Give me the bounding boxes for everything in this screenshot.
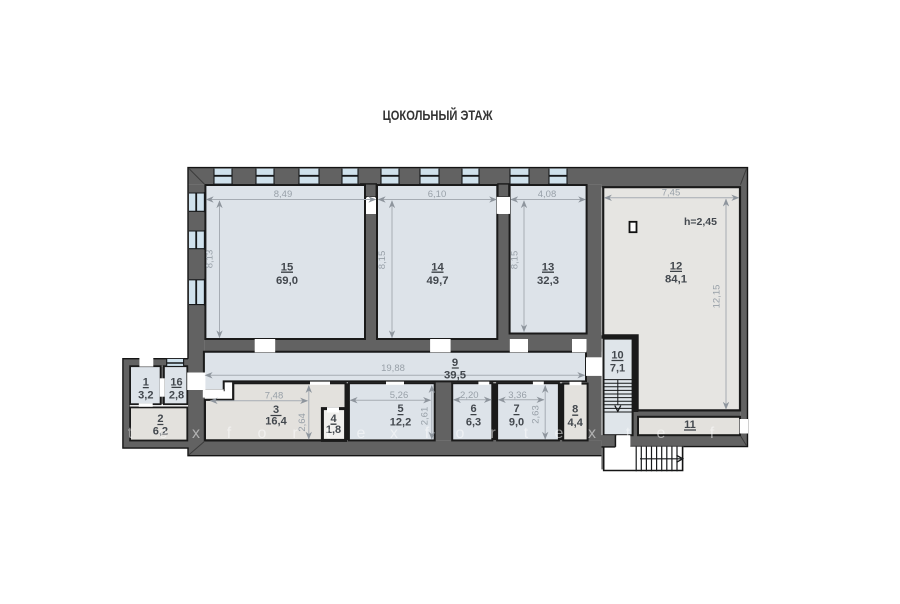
svg-text:r: r xyxy=(292,425,298,442)
svg-text:16: 16 xyxy=(170,377,182,389)
svg-text:5,26: 5,26 xyxy=(390,390,409,401)
svg-text:3: 3 xyxy=(273,404,279,416)
svg-text:e: e xyxy=(159,425,168,442)
svg-text:7: 7 xyxy=(513,403,519,415)
svg-text:x: x xyxy=(588,425,596,442)
svg-text:16,4: 16,4 xyxy=(265,416,287,428)
svg-text:t: t xyxy=(626,425,631,442)
svg-text:11: 11 xyxy=(684,419,696,431)
svg-text:2,63: 2,63 xyxy=(531,405,542,424)
svg-text:4,08: 4,08 xyxy=(538,189,557,200)
svg-text:49,7: 49,7 xyxy=(427,275,449,287)
svg-text:13: 13 xyxy=(542,261,555,273)
svg-text:6,10: 6,10 xyxy=(428,189,447,200)
svg-text:r: r xyxy=(490,425,496,442)
svg-text:10: 10 xyxy=(611,350,623,362)
svg-text:6,3: 6,3 xyxy=(466,416,481,428)
svg-text:15: 15 xyxy=(281,261,294,273)
svg-text:69,0: 69,0 xyxy=(276,275,298,287)
svg-text:h=2,45: h=2,45 xyxy=(684,216,717,228)
svg-text:4,4: 4,4 xyxy=(568,417,584,429)
svg-text:32,3: 32,3 xyxy=(537,275,559,287)
svg-text:t: t xyxy=(128,425,133,442)
svg-text:2,8: 2,8 xyxy=(169,389,184,401)
svg-text:3,2: 3,2 xyxy=(138,389,153,401)
svg-text:e: e xyxy=(657,425,666,442)
svg-text:7,1: 7,1 xyxy=(610,363,625,375)
svg-text:6: 6 xyxy=(470,403,476,415)
svg-text:84,1: 84,1 xyxy=(665,274,687,286)
svg-text:x: x xyxy=(192,425,200,442)
svg-text:t: t xyxy=(326,425,331,442)
svg-text:5: 5 xyxy=(397,403,403,415)
svg-text:39,5: 39,5 xyxy=(444,370,466,382)
svg-text:ЦОКОЛЬНЫЙ ЭТАЖ: ЦОКОЛЬНЫЙ ЭТАЖ xyxy=(383,106,493,123)
svg-text:9,0: 9,0 xyxy=(509,416,524,428)
svg-text:7,45: 7,45 xyxy=(662,188,681,199)
svg-text:8,15: 8,15 xyxy=(377,251,388,270)
svg-text:o: o xyxy=(456,425,465,442)
svg-text:2,64: 2,64 xyxy=(297,413,308,432)
svg-text:8,13: 8,13 xyxy=(205,250,216,269)
svg-text:14: 14 xyxy=(431,261,444,273)
svg-text:e: e xyxy=(357,425,366,442)
svg-text:1: 1 xyxy=(143,377,149,389)
svg-text:8: 8 xyxy=(572,404,578,416)
svg-text:8,49: 8,49 xyxy=(274,189,293,200)
svg-text:3,36: 3,36 xyxy=(508,390,527,401)
svg-text:9: 9 xyxy=(452,357,458,369)
svg-text:f: f xyxy=(425,425,430,442)
svg-text:o: o xyxy=(258,425,267,442)
svg-text:7,48: 7,48 xyxy=(265,391,284,402)
svg-text:8,15: 8,15 xyxy=(510,251,521,270)
svg-text:2: 2 xyxy=(157,413,163,425)
svg-text:12,15: 12,15 xyxy=(712,285,723,309)
svg-text:19,88: 19,88 xyxy=(381,363,405,374)
svg-text:t: t xyxy=(524,425,529,442)
svg-text:o: o xyxy=(60,425,69,442)
svg-text:f: f xyxy=(710,425,715,442)
svg-text:f: f xyxy=(29,425,34,442)
svg-text:e: e xyxy=(555,425,564,442)
svg-text:x: x xyxy=(390,425,398,442)
svg-text:2,20: 2,20 xyxy=(460,390,479,401)
svg-text:2,61: 2,61 xyxy=(419,407,430,426)
svg-text:f: f xyxy=(227,425,232,442)
svg-text:r: r xyxy=(94,425,100,442)
svg-text:12: 12 xyxy=(670,261,683,273)
